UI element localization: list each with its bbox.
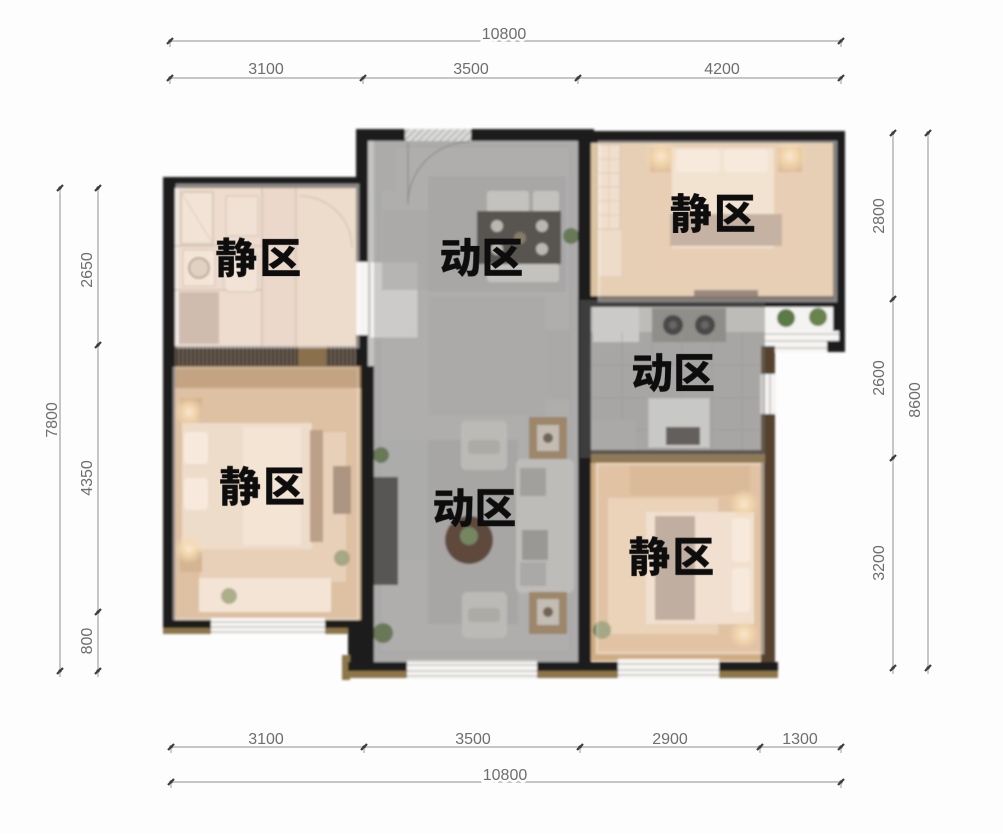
svg-text:10800: 10800 [483,767,528,784]
svg-text:4200: 4200 [704,61,740,78]
svg-text:2650: 2650 [79,252,96,288]
svg-text:8600: 8600 [907,382,924,418]
svg-text:3200: 3200 [871,545,888,581]
svg-text:1300: 1300 [782,731,818,748]
svg-text:3100: 3100 [248,731,284,748]
svg-text:3500: 3500 [455,731,491,748]
svg-text:10800: 10800 [482,26,527,43]
svg-text:3500: 3500 [453,61,489,78]
svg-text:3100: 3100 [248,61,284,78]
svg-text:800: 800 [79,628,96,655]
svg-text:2800: 2800 [871,198,888,234]
svg-text:2900: 2900 [652,731,688,748]
svg-text:7800: 7800 [44,402,61,438]
svg-text:4350: 4350 [79,460,96,496]
svg-text:2600: 2600 [871,360,888,396]
